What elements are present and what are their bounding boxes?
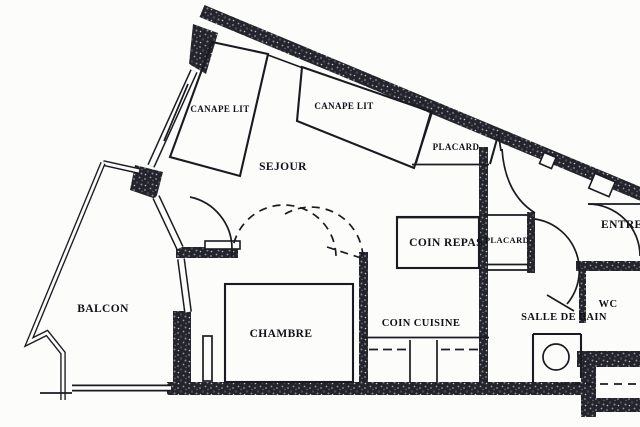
door-arc-entry: [502, 149, 535, 213]
label-salle-de-bain: SALLE DE BAIN: [521, 312, 607, 323]
placard1-side-left: [416, 112, 431, 163]
windows-and-balcony: [29, 71, 194, 400]
placard1-side-right: [490, 139, 497, 164]
label-chambre: CHAMBRE: [250, 328, 313, 340]
window-balcony-door-core: [156, 197, 180, 248]
exterior-wall-bottom: [167, 382, 585, 395]
doors: [190, 149, 640, 384]
floor-plan-page: CANAPE LIT CANAPE LIT PLACARD SEJOUR COI…: [0, 0, 640, 427]
balcony-outline: [29, 163, 103, 400]
floor-plan-canvas: CANAPE LIT CANAPE LIT PLACARD SEJOUR COI…: [0, 0, 640, 427]
label-placard-1: PLACARD: [433, 142, 480, 152]
corridor-wall-lower: [592, 398, 640, 412]
toilet-bowl: [543, 344, 569, 370]
wall-chambre-kitchen: [359, 252, 368, 383]
exterior-walls: [130, 11, 640, 417]
label-wc: WC: [599, 299, 618, 310]
door-arc-bathroom: [535, 219, 579, 304]
interior-walls: [359, 132, 586, 385]
balcony-outline-core: [29, 163, 103, 400]
label-canape-lit-1: CANAPE LIT: [190, 104, 249, 114]
label-entree: ENTREE: [601, 219, 640, 231]
label-canape-lit-2: CANAPE LIT: [314, 101, 373, 111]
door-leaf-bathroom: [547, 295, 574, 311]
window-sash-line: [164, 84, 188, 141]
wall-facade-chambre: [173, 311, 191, 389]
door-leaf-chambre: [327, 247, 361, 258]
label-coin-cuisine: COIN CUISINE: [382, 318, 461, 329]
label-sejour: SEJOUR: [259, 161, 307, 173]
radiator-chambre: [203, 336, 212, 381]
door-arc-chambre-1: [232, 205, 336, 257]
label-placard-2: PLACARD: [485, 235, 529, 245]
label-balcon: BALCON: [77, 303, 129, 315]
label-coin-repas: COIN REPAS: [409, 237, 483, 249]
window-chambre-west-core: [181, 259, 188, 312]
door-arc-chambre-2: [285, 207, 363, 259]
